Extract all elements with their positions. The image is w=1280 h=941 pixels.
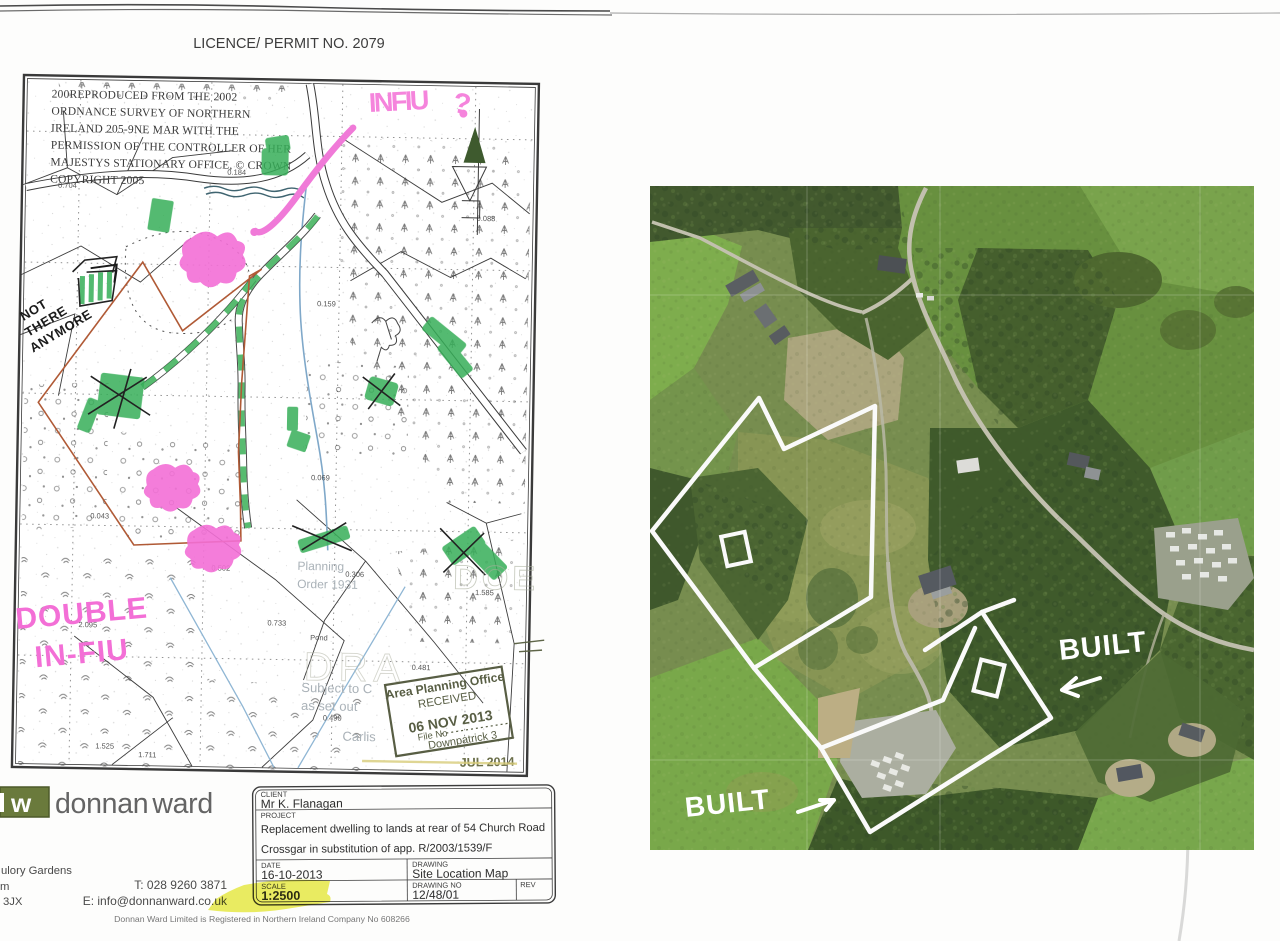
svg-text:Mr K. Flanagan: Mr K. Flanagan: [261, 796, 343, 811]
svg-text:0.069: 0.069: [311, 473, 330, 482]
svg-text:0.733: 0.733: [267, 618, 286, 627]
svg-text:0.704: 0.704: [58, 181, 77, 190]
svg-text:0.159: 0.159: [317, 299, 336, 308]
svg-text:3JX: 3JX: [3, 896, 23, 908]
svg-text:Order 1931: Order 1931: [297, 577, 358, 592]
svg-text:0.481: 0.481: [412, 663, 431, 672]
svg-text:as set out: as set out: [301, 698, 358, 714]
svg-text:LICENCE/ PERMIT NO. 2079: LICENCE/ PERMIT NO. 2079: [193, 36, 385, 52]
svg-text:DOE: DOE: [453, 559, 539, 598]
svg-text:Donnan Ward Limited is Registe: Donnan Ward Limited is Registered in Nor…: [114, 914, 410, 924]
svg-text:Planning: Planning: [297, 559, 344, 574]
svg-text:Replacement dwelling to lands: Replacement dwelling to lands at rear of…: [261, 822, 545, 836]
svg-text:Carlis: Carlis: [342, 729, 376, 745]
svg-text:Site Location Map: Site Location Map: [412, 866, 508, 881]
svg-text:w: w: [10, 788, 32, 818]
svg-text:12/48/01: 12/48/01: [412, 888, 459, 902]
svg-text:Pond: Pond: [310, 633, 328, 642]
svg-text:0.184: 0.184: [227, 168, 246, 177]
svg-text:1.711: 1.711: [138, 750, 156, 759]
svg-text:PROJECT: PROJECT: [261, 811, 296, 820]
svg-text:ulory Gardens: ulory Gardens: [1, 865, 72, 877]
svg-text:Subject to C: Subject to C: [301, 680, 372, 696]
svg-text:m: m: [0, 881, 9, 893]
svg-text:E: info@donnanward.co.uk: E: info@donnanward.co.uk: [83, 894, 228, 908]
svg-text:T: 028 9260 3871: T: 028 9260 3871: [134, 878, 227, 892]
svg-text:0.043: 0.043: [90, 511, 109, 520]
svg-text:INFIU: INFIU: [368, 85, 428, 118]
svg-text:Crossgar in substitution of ap: Crossgar in substitution of app. R/2003/…: [261, 842, 493, 856]
svg-text:donnanward: donnanward: [55, 788, 213, 820]
svg-text:0.490: 0.490: [323, 713, 342, 722]
svg-text:REV: REV: [520, 880, 535, 889]
svg-text:1.525: 1.525: [95, 741, 114, 750]
